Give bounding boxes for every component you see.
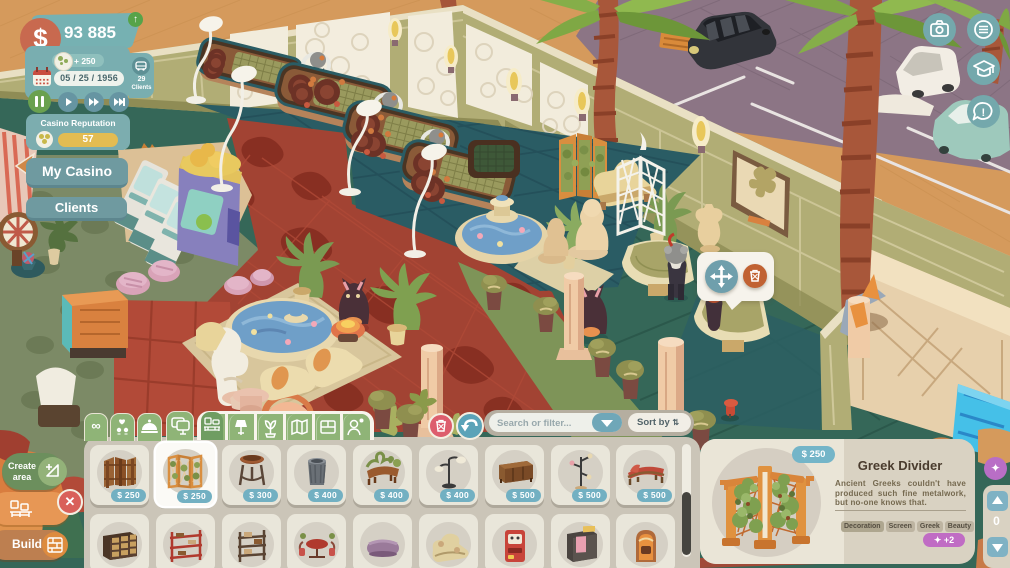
svg-text:!: !	[982, 107, 986, 119]
